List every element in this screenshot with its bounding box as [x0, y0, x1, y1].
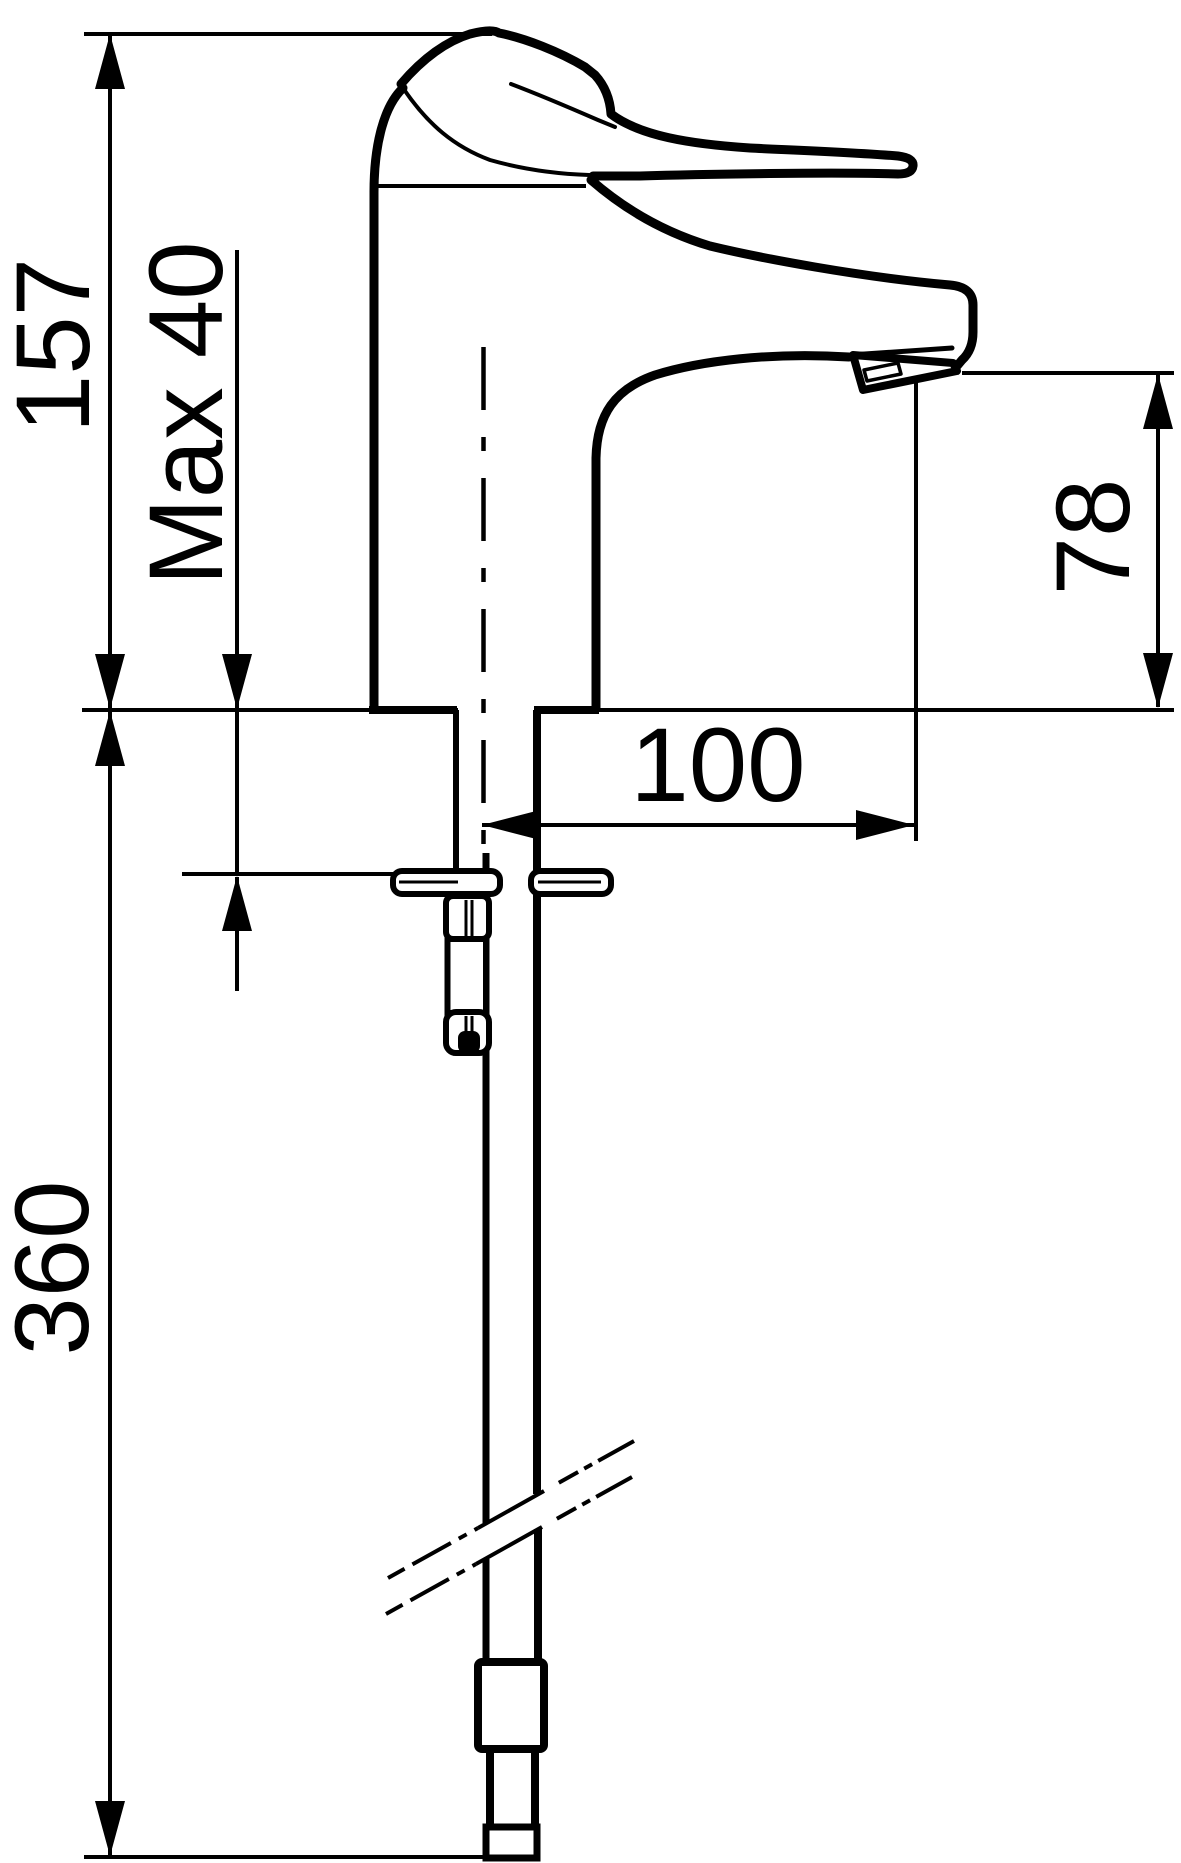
svg-text:Max 40: Max 40 — [128, 241, 245, 585]
svg-text:157: 157 — [0, 258, 112, 433]
svg-text:360: 360 — [0, 1180, 111, 1355]
svg-text:100: 100 — [630, 707, 805, 824]
svg-text:78: 78 — [1035, 479, 1152, 596]
